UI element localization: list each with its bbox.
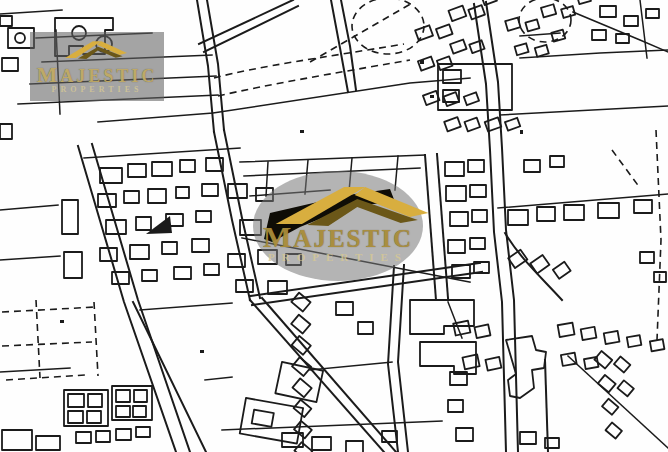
watermark-center-background xyxy=(253,171,423,281)
map-screenshot: MAJESTIC PROPERTIES MAJESTIC PROPERTIES xyxy=(0,0,668,452)
watermark-top-left-background xyxy=(30,32,164,101)
